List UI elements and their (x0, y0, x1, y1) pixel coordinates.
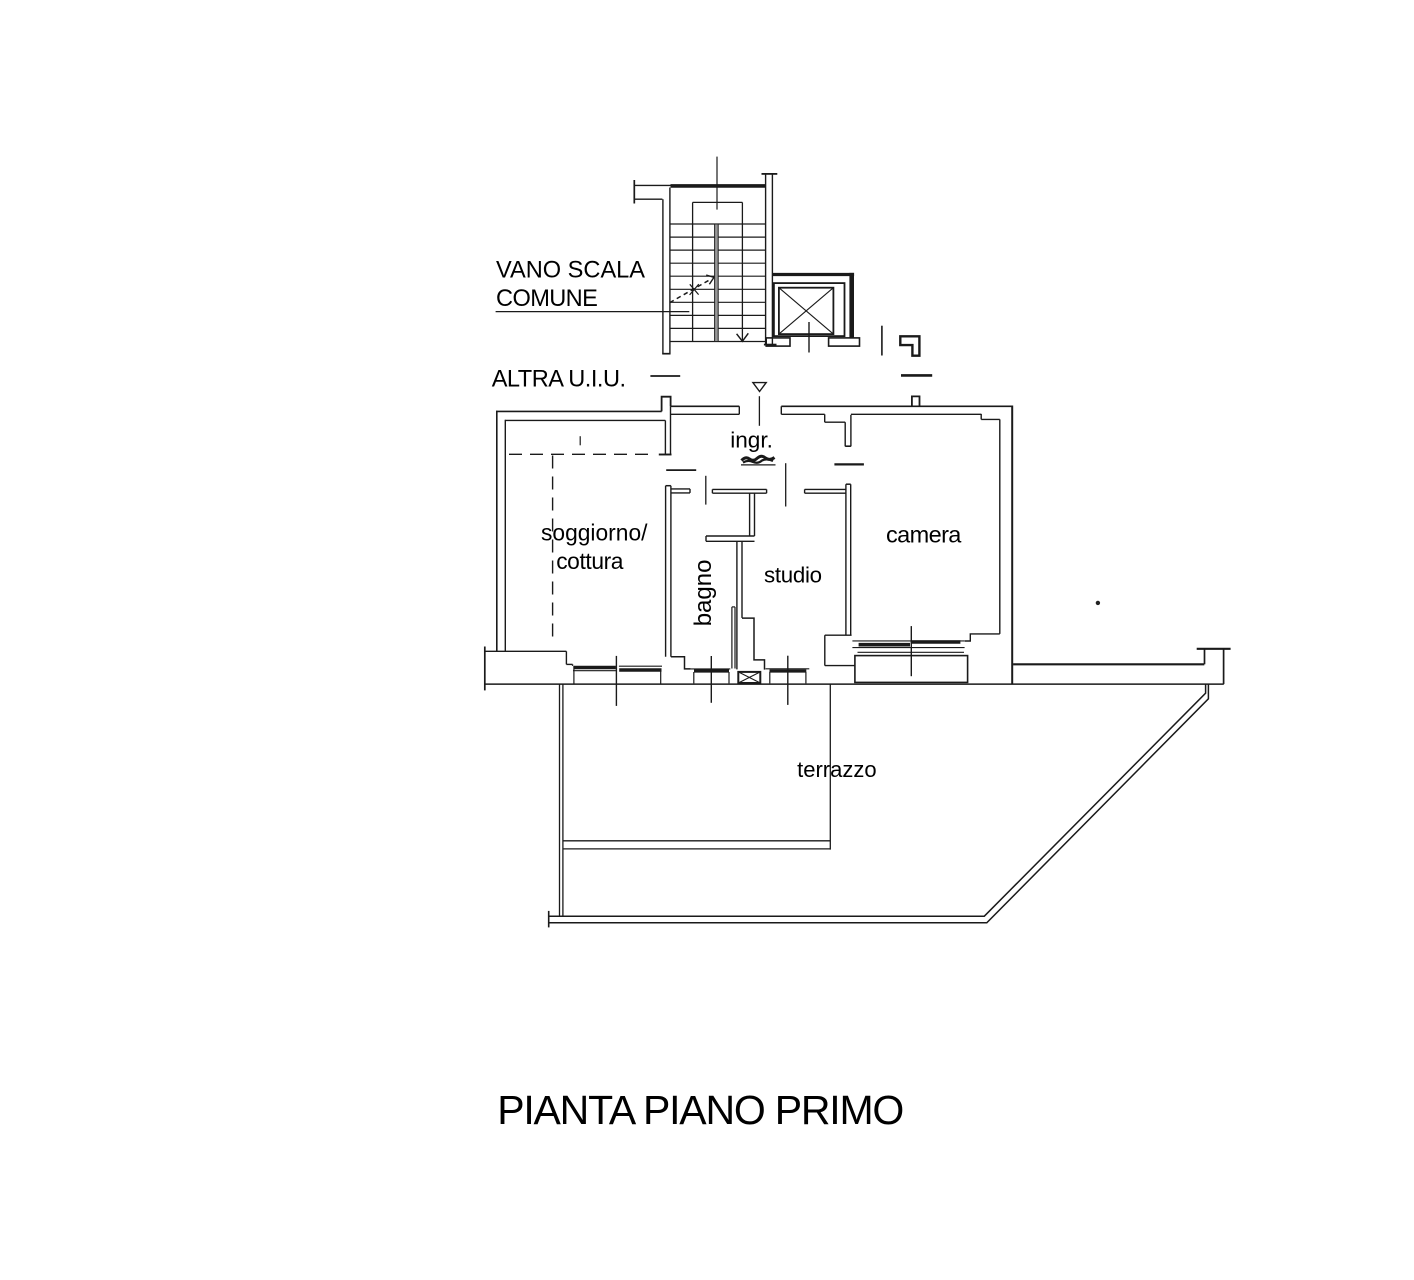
svg-text:bagno: bagno (690, 560, 717, 627)
svg-text:COMUNE: COMUNE (496, 286, 597, 312)
svg-text:cottura: cottura (556, 548, 624, 574)
svg-text:camera: camera (886, 521, 962, 547)
svg-text:VANO SCALA: VANO SCALA (496, 257, 645, 283)
svg-text:ingr.: ingr. (730, 428, 773, 453)
svg-text:terrazzo: terrazzo (797, 757, 876, 782)
svg-text:studio: studio (764, 562, 822, 587)
svg-text:ALTRA U.I.U.: ALTRA U.I.U. (492, 366, 626, 392)
svg-text:PIANTA PIANO PRIMO: PIANTA PIANO PRIMO (497, 1087, 903, 1133)
svg-text:soggiorno/: soggiorno/ (541, 520, 648, 546)
